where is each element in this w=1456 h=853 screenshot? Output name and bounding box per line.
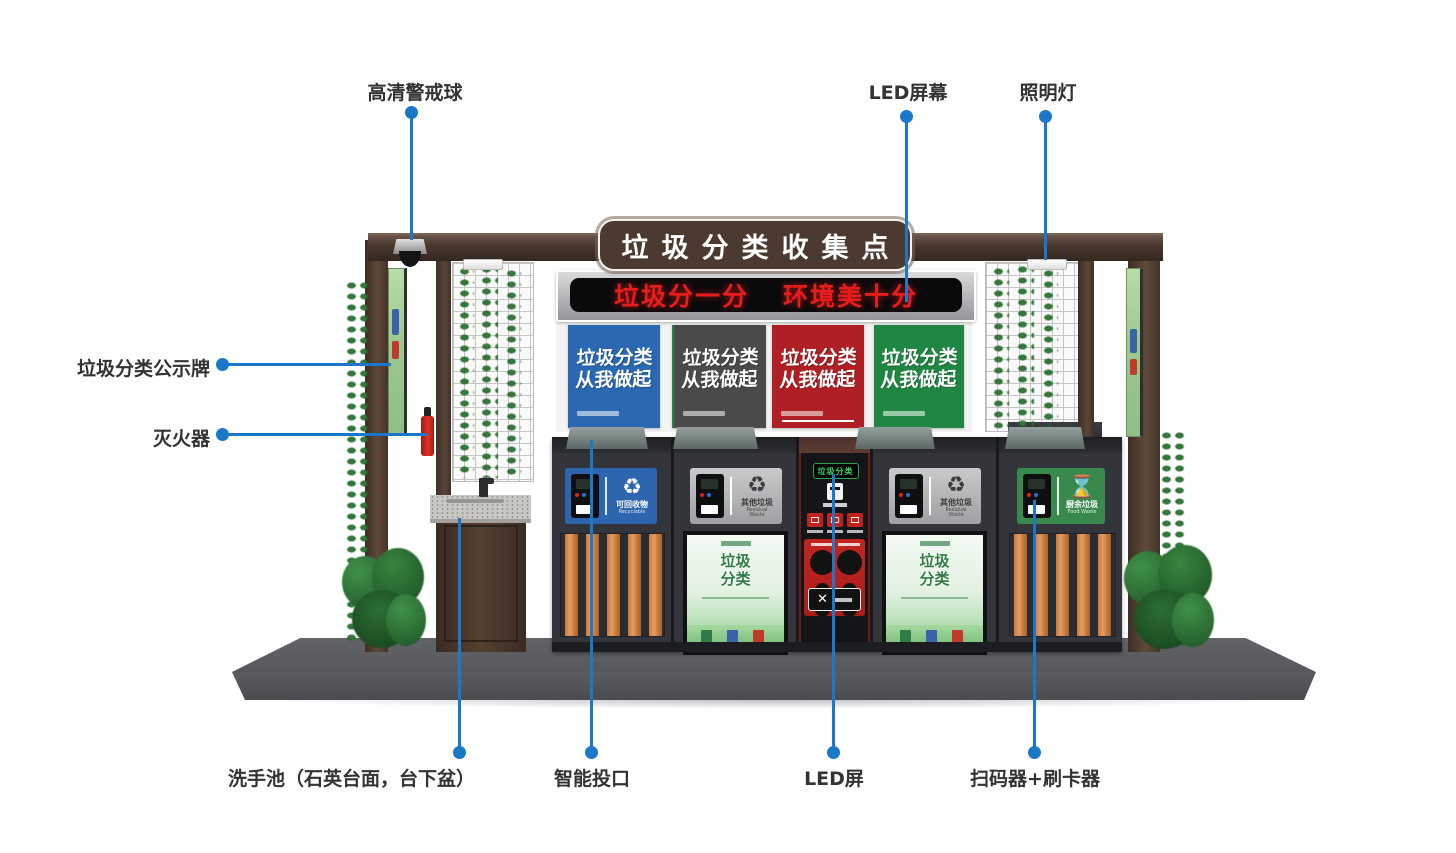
bin-section-other-waste-2: ♻ 其他垃圾 Residual Waste 垃圾分类	[873, 453, 996, 642]
callout-label-led-screen: LED屏幕	[838, 78, 978, 105]
wood-slat-door	[1009, 533, 1116, 637]
hole-caption	[838, 543, 860, 546]
callout-label-scanner: 扫码器+刷卡器	[955, 764, 1115, 791]
card-reader	[571, 474, 599, 518]
bin-label: 可回收物	[613, 501, 651, 509]
callout-dot	[585, 746, 598, 759]
poster-wall: 垃圾分类从我做起 垃圾分类从我做起 垃圾分类从我做起 垃圾分类从我做起	[556, 320, 972, 432]
poster-slogan: 垃圾分类从我做起	[673, 346, 767, 392]
led-text-left: 垃圾分一分	[614, 277, 749, 313]
step-caption	[807, 530, 823, 533]
callout-label-extinguisher: 灭火器	[60, 424, 210, 451]
poster-slogan: 垃圾分类从我做起	[873, 346, 965, 392]
bin-label-en: Recyclable	[613, 510, 651, 515]
mini-poster: 垃圾分类	[882, 531, 987, 655]
callout-label-notice-board: 垃圾分类公示牌	[60, 354, 210, 381]
recycle-icon: ♻	[613, 477, 651, 499]
step-icon-2	[827, 513, 843, 527]
deposit-hole-right	[837, 550, 862, 575]
hole-caption	[811, 543, 833, 546]
main-sign: 垃圾分类收集点	[598, 219, 912, 271]
callout-line	[1044, 116, 1047, 260]
wood-slat-door	[560, 533, 665, 637]
poster-subtitle	[781, 411, 823, 416]
mini-poster-slogan: 垃圾分类	[886, 552, 983, 588]
step-icon-3	[847, 513, 863, 527]
smart-inlet-tray	[855, 427, 935, 449]
sink-cabinet	[436, 517, 526, 652]
callout-dot	[405, 106, 418, 119]
callout-dot	[1039, 110, 1052, 123]
vine-plant	[458, 266, 474, 478]
bin-label-en: Food Waste	[1065, 510, 1099, 515]
other-waste-icon: ♻	[738, 475, 776, 497]
poster-recyclable: 垃圾分类从我做起	[568, 325, 660, 428]
x-icon: ✕	[817, 593, 828, 606]
mini-poster-brand	[920, 541, 950, 546]
card-reader	[895, 474, 923, 518]
security-camera-dome	[399, 251, 421, 267]
callout-label-sink: 洗手池（石英台面，台下盆）	[228, 764, 468, 791]
callout-line	[458, 518, 461, 748]
card-reader	[696, 474, 724, 518]
bush-right	[1120, 545, 1216, 657]
bin-label: 其他垃圾	[738, 499, 776, 507]
led-banner: 垃圾分一分 环境美十分	[556, 270, 976, 322]
bin-section-other-waste: ♻ 其他垃圾 Residual Waste 垃圾分类	[674, 453, 797, 642]
bin-header-recyclable: ♻ 可回收物 Recyclable	[565, 468, 657, 524]
notice-board-left	[388, 268, 407, 436]
poster-slogan: 垃圾分类从我做起	[771, 346, 865, 392]
callout-dot	[216, 358, 229, 371]
callout-dot	[900, 110, 913, 123]
vine-plant	[1042, 268, 1058, 426]
other-waste-icon: ♻	[937, 475, 975, 497]
callout-line	[1033, 500, 1036, 748]
bin-label-en: Residual Waste	[937, 508, 975, 518]
callout-label-light: 照明灯	[978, 78, 1118, 105]
notice-board-right	[1126, 268, 1143, 437]
scanner-card-reader	[1023, 474, 1051, 518]
callout-label-smart-inlet: 智能投口	[512, 764, 672, 791]
callout-dot	[216, 428, 229, 441]
platform-shadow	[250, 699, 1290, 709]
ground-platform-front	[232, 672, 1316, 700]
vine-plant	[992, 266, 1009, 428]
poster-kitchen-waste: 垃圾分类从我做起	[772, 325, 864, 428]
callout-line	[227, 363, 391, 366]
bin-label: 厨余垃圾	[1065, 501, 1099, 509]
vine-plant	[1016, 264, 1034, 428]
bin-header-other-waste: ♻ 其他垃圾 Residual Waste	[690, 468, 782, 524]
mini-poster: 垃圾分类	[683, 531, 788, 655]
bin-label: 其他垃圾	[937, 499, 975, 507]
bin-header-food-waste: ⌛ 厨余垃圾 Food Waste	[1017, 468, 1105, 524]
callout-line	[227, 433, 427, 436]
callout-line	[410, 112, 413, 240]
bin-section-recyclable: ♻ 可回收物 Recyclable	[552, 453, 671, 642]
poster-underline	[782, 420, 854, 422]
hourglass-icon: ⌛	[1065, 477, 1099, 499]
poster-other-waste: 垃圾分类从我做起	[672, 325, 766, 428]
callout-dot	[827, 746, 840, 759]
sink-basin	[446, 499, 504, 503]
callout-dot	[1028, 746, 1041, 759]
pergola-inner-post-left	[436, 258, 451, 520]
vine-plant	[480, 264, 498, 478]
poster-harmful-waste: 垃圾分类从我做起	[874, 325, 964, 428]
light-fixture-right	[1027, 259, 1067, 270]
center-led-screen: 垃圾分类	[813, 463, 859, 479]
poster-subtitle	[883, 411, 925, 416]
step-caption	[847, 530, 863, 533]
bin-section-food-waste: ⌛ 厨余垃圾 Food Waste	[999, 453, 1122, 642]
bin-header-other-waste: ♻ 其他垃圾 Residual Waste	[889, 468, 981, 524]
led-banner-screen: 垃圾分一分 环境美十分	[570, 278, 962, 312]
callout-line	[905, 116, 908, 302]
fire-extinguisher	[421, 416, 434, 456]
scene: 垃圾分类收集点 垃圾分一分 环境美十分 垃圾分类从我做起 垃圾分类从我做起 垃圾…	[0, 0, 1456, 853]
callout-dot	[453, 746, 466, 759]
light-fixture-left	[463, 259, 503, 270]
poster-subtitle	[577, 411, 619, 416]
faucet-icon	[479, 478, 488, 497]
vine-plant	[505, 268, 521, 476]
bin-base	[552, 642, 1122, 652]
mini-poster-divider	[702, 597, 770, 599]
step-icon-1	[807, 513, 823, 527]
bin-label-en: Residual Waste	[738, 508, 776, 518]
smart-inlet-tray	[673, 427, 758, 449]
mini-poster-slogan: 垃圾分类	[687, 552, 784, 588]
callout-line	[832, 474, 835, 748]
callout-label-led-small: LED屏	[774, 764, 894, 791]
smart-inlet-tray	[1005, 427, 1085, 449]
main-sign-title: 垃圾分类收集点	[609, 226, 902, 265]
step-caption	[827, 530, 843, 533]
bin-cabinet: ♻ 可回收物 Recyclable ♻ 其他垃圾 Residual Waste	[552, 437, 1122, 652]
smart-inlet-tray	[566, 427, 648, 449]
pergola-inner-post-right	[1078, 258, 1094, 448]
mini-poster-divider	[901, 597, 969, 599]
poster-subtitle	[683, 411, 725, 416]
callout-label-camera: 高清警戒球	[340, 78, 490, 105]
bush-left	[338, 548, 430, 656]
callout-line	[590, 440, 593, 748]
led-text-right: 环境美十分	[783, 277, 918, 313]
mini-poster-brand	[721, 541, 751, 546]
poster-slogan: 垃圾分类从我做起	[567, 346, 661, 392]
